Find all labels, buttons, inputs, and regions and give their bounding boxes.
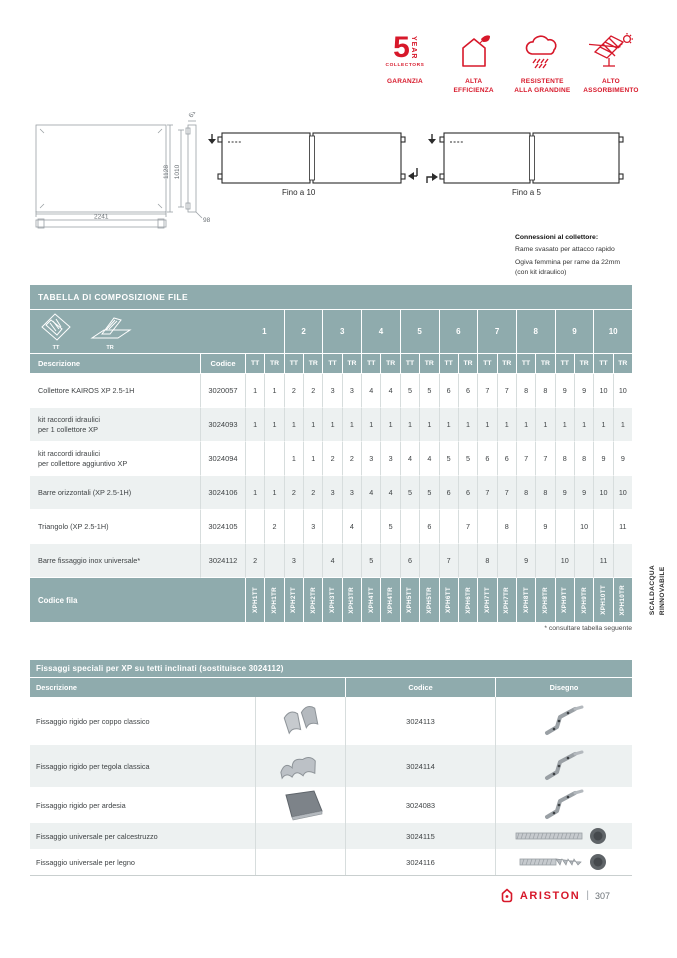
row-value: 1 bbox=[477, 408, 496, 442]
row-value: 2 bbox=[245, 544, 264, 578]
dim-top: 61 bbox=[188, 112, 198, 119]
file-code-text: XPH8TR bbox=[542, 587, 549, 614]
row-code: 3020057 bbox=[200, 374, 245, 408]
row-value: 1 bbox=[613, 408, 632, 442]
row-value bbox=[419, 544, 438, 578]
row-value: 4 bbox=[361, 476, 380, 510]
badge-absorption-label: ALTO ASSORBIMENTO bbox=[583, 78, 638, 96]
file-code-text: XPH6TT bbox=[445, 587, 452, 613]
file-code-text: XPH1TR bbox=[271, 587, 278, 614]
row-value bbox=[516, 510, 535, 544]
row-value: 6 bbox=[439, 374, 458, 408]
threaded-rod-drawing bbox=[495, 823, 632, 849]
fixing-description: Fissaggio rigido per coppo classico bbox=[30, 697, 255, 745]
codice-fila-label: Codice fila bbox=[30, 578, 245, 622]
connection-note-line: Rame svasato per attacco rapido bbox=[515, 245, 665, 255]
row-value: 3 bbox=[342, 476, 361, 510]
row-code: 3024105 bbox=[200, 510, 245, 544]
col-header-codice: Codice bbox=[200, 354, 245, 374]
row-value: 2 bbox=[284, 476, 303, 510]
group-col-5: 5 bbox=[400, 310, 439, 354]
row-value: 6 bbox=[458, 374, 477, 408]
row-value: 4 bbox=[342, 510, 361, 544]
file-code-xph5tt: XPH5TT bbox=[400, 578, 419, 622]
col-header-descrizione: Descrizione bbox=[30, 678, 345, 697]
file-code-text: XPH5TT bbox=[406, 587, 413, 613]
row-code: 3024094 bbox=[200, 442, 245, 476]
series-tr-label: Fino a 5 bbox=[512, 188, 541, 197]
page-footer: ARISTON | 307 bbox=[500, 888, 610, 903]
group-col-1: 1 bbox=[245, 310, 284, 354]
series-tt-diagram bbox=[208, 133, 417, 183]
file-code-text: XPH2TR bbox=[310, 587, 317, 614]
row-value bbox=[535, 544, 554, 578]
row-value bbox=[264, 442, 283, 476]
slate-tile-image bbox=[255, 787, 345, 823]
subcol-tr-2: TR bbox=[303, 354, 322, 374]
row-value: 7 bbox=[458, 510, 477, 544]
file-code-text: XPH9TT bbox=[561, 587, 568, 613]
warranty-collectors-label: COLLECTORS bbox=[386, 63, 425, 68]
page-number: 307 bbox=[595, 891, 610, 901]
row-value: 3 bbox=[284, 544, 303, 578]
subcol-tr-10: TR bbox=[613, 354, 632, 374]
row-description: kit raccordi idraulici per 1 collettore … bbox=[30, 408, 200, 442]
row-value bbox=[303, 544, 322, 578]
row-value: 8 bbox=[516, 374, 535, 408]
badge-hail: RESISTENTE ALLA GRANDINE bbox=[509, 30, 575, 96]
row-value bbox=[380, 544, 399, 578]
warranty-number: 5 bbox=[393, 34, 410, 61]
row-value: 9 bbox=[574, 374, 593, 408]
group-col-2: 2 bbox=[284, 310, 323, 354]
row-value bbox=[574, 544, 593, 578]
group-col-7: 7 bbox=[477, 310, 516, 354]
file-code-text: XPH2TT bbox=[290, 587, 297, 613]
row-value: 1 bbox=[361, 408, 380, 442]
mounting-type-icons: TT TR bbox=[30, 310, 245, 354]
coppo-tile-image bbox=[255, 697, 345, 745]
row-value: 1 bbox=[419, 408, 438, 442]
row-value: 5 bbox=[439, 442, 458, 476]
row-value bbox=[458, 544, 477, 578]
roof-bracket-drawing bbox=[495, 787, 632, 823]
row-value: 1 bbox=[497, 408, 516, 442]
connection-note-line: (con kit idraulico) bbox=[515, 268, 665, 278]
file-code-text: XPH5TR bbox=[426, 587, 433, 614]
tilted-roof-icon bbox=[38, 312, 74, 344]
file-code-xph2tt: XPH2TT bbox=[284, 578, 303, 622]
file-code-xph2tr: XPH2TR bbox=[303, 578, 322, 622]
file-code-xph5tr: XPH5TR bbox=[419, 578, 438, 622]
subcol-tr-5: TR bbox=[419, 354, 438, 374]
group-col-10: 10 bbox=[593, 310, 632, 354]
row-value: 1 bbox=[245, 408, 264, 442]
row-value: 1 bbox=[284, 408, 303, 442]
row-value: 8 bbox=[497, 510, 516, 544]
row-value: 10 bbox=[593, 476, 612, 510]
row-value: 1 bbox=[322, 408, 341, 442]
cloud-hail-icon bbox=[522, 30, 562, 72]
dim-depth: 98 bbox=[203, 217, 211, 224]
tegola-tile-image bbox=[255, 745, 345, 787]
file-code-xph6tr: XPH6TR bbox=[458, 578, 477, 622]
subcol-tr-7: TR bbox=[497, 354, 516, 374]
composition-table-title: TABELLA DI COMPOSIZIONE FILE bbox=[30, 285, 632, 310]
row-value: 9 bbox=[535, 510, 554, 544]
row-value: 10 bbox=[613, 476, 632, 510]
row-value: 1 bbox=[555, 408, 574, 442]
row-description: kit raccordi idraulici per collettore ag… bbox=[30, 442, 200, 476]
row-value: 5 bbox=[419, 374, 438, 408]
subcol-tr-4: TR bbox=[380, 354, 399, 374]
subcol-tr-1: TR bbox=[264, 354, 283, 374]
row-value: 4 bbox=[400, 442, 419, 476]
row-value: 1 bbox=[284, 442, 303, 476]
file-code-xph7tt: XPH7TT bbox=[477, 578, 496, 622]
group-col-6: 6 bbox=[439, 310, 478, 354]
subcol-tt-6: TT bbox=[439, 354, 458, 374]
side-tab-line2: RINNOVABILE bbox=[658, 565, 668, 615]
file-code-text: XPH8TT bbox=[523, 587, 530, 613]
empty-cell bbox=[255, 823, 345, 849]
badge-warranty: 5 YEAR COLLECTORS GARANZIA bbox=[372, 30, 438, 96]
footer-separator: | bbox=[586, 890, 589, 901]
row-value: 3 bbox=[303, 510, 322, 544]
fixing-description: Fissaggio rigido per tegola classica bbox=[30, 745, 255, 787]
fixing-code: 3024116 bbox=[345, 849, 495, 875]
row-value: 6 bbox=[400, 544, 419, 578]
row-code: 3024106 bbox=[200, 476, 245, 510]
row-value: 1 bbox=[593, 408, 612, 442]
roof-bracket-drawing bbox=[495, 745, 632, 787]
group-col-8: 8 bbox=[516, 310, 555, 354]
row-value: 8 bbox=[535, 476, 554, 510]
row-value: 8 bbox=[516, 476, 535, 510]
warranty-year-label: YEAR bbox=[410, 36, 417, 59]
row-value: 3 bbox=[342, 374, 361, 408]
row-value: 6 bbox=[458, 476, 477, 510]
row-value: 8 bbox=[477, 544, 496, 578]
row-value: 1 bbox=[303, 442, 322, 476]
row-value: 6 bbox=[419, 510, 438, 544]
file-code-xph4tt: XPH4TT bbox=[361, 578, 380, 622]
row-value: 5 bbox=[458, 442, 477, 476]
row-value: 6 bbox=[477, 442, 496, 476]
tt-mounting-label: TT bbox=[53, 345, 60, 351]
series-tr-diagram bbox=[427, 133, 623, 183]
row-code: 3024093 bbox=[200, 408, 245, 442]
row-value: 10 bbox=[574, 510, 593, 544]
fixing-code: 3024083 bbox=[345, 787, 495, 823]
section-side-tab: SCALDACQUA RINNOVABILE bbox=[616, 548, 677, 632]
subcol-tt-9: TT bbox=[555, 354, 574, 374]
group-col-9: 9 bbox=[555, 310, 594, 354]
row-value bbox=[284, 510, 303, 544]
special-fixings-header: Descrizione Codice Disegno bbox=[30, 678, 632, 697]
row-value: 11 bbox=[593, 544, 612, 578]
row-value: 7 bbox=[497, 476, 516, 510]
row-value bbox=[555, 510, 574, 544]
row-value: 7 bbox=[439, 544, 458, 578]
row-value bbox=[477, 510, 496, 544]
row-value: 8 bbox=[535, 374, 554, 408]
dim-height-outer: 1128 bbox=[163, 165, 170, 179]
row-value bbox=[400, 510, 419, 544]
row-value: 1 bbox=[380, 408, 399, 442]
row-value: 9 bbox=[555, 476, 574, 510]
row-value: 1 bbox=[303, 408, 322, 442]
row-value: 1 bbox=[264, 408, 283, 442]
row-description: Barre orizzontali (XP 2.5-1H) bbox=[30, 476, 200, 510]
row-value: 7 bbox=[516, 442, 535, 476]
dim-height-inner: 1010 bbox=[174, 164, 181, 179]
subcol-tt-10: TT bbox=[593, 354, 612, 374]
composition-table: TABELLA DI COMPOSIZIONE FILE TT bbox=[30, 285, 632, 622]
row-value bbox=[264, 544, 283, 578]
special-fixings-title: Fissaggi speciali per XP su tetti inclin… bbox=[30, 660, 632, 678]
row-value bbox=[245, 442, 264, 476]
tr-mounting-label: TR bbox=[106, 345, 113, 351]
row-value: 1 bbox=[264, 374, 283, 408]
subcol-tt-8: TT bbox=[516, 354, 535, 374]
col-header-disegno: Disegno bbox=[495, 678, 632, 697]
row-description: Barre fissaggio inox universale* bbox=[30, 544, 200, 578]
row-value bbox=[245, 510, 264, 544]
brand-name: ARISTON bbox=[520, 890, 581, 902]
subcol-tt-2: TT bbox=[284, 354, 303, 374]
row-value: 6 bbox=[439, 476, 458, 510]
special-fixings-table: Fissaggi speciali per XP su tetti inclin… bbox=[30, 660, 632, 876]
row-value: 7 bbox=[477, 374, 496, 408]
ariston-logo-icon bbox=[500, 888, 514, 903]
badge-efficiency: ALTA EFFICIENZA bbox=[441, 30, 507, 96]
row-value: 1 bbox=[516, 408, 535, 442]
special-fixings-grid: Fissaggio rigido per coppo classico30241… bbox=[30, 697, 632, 876]
file-code-text: XPH6TR bbox=[465, 587, 472, 614]
file-code-xph1tt: XPH1TT bbox=[245, 578, 264, 622]
subcol-tt-1: TT bbox=[245, 354, 264, 374]
file-code-text: XPH9TR bbox=[581, 587, 588, 614]
fixing-description: Fissaggio universale per calcestruzzo bbox=[30, 823, 255, 849]
group-col-3: 3 bbox=[322, 310, 361, 354]
file-code-xph10tt: XPH10TT bbox=[593, 578, 612, 622]
subcol-tt-7: TT bbox=[477, 354, 496, 374]
file-code-xph4tr: XPH4TR bbox=[380, 578, 399, 622]
row-value: 1 bbox=[458, 408, 477, 442]
row-value bbox=[593, 510, 612, 544]
row-value: 4 bbox=[419, 442, 438, 476]
subcol-tt-3: TT bbox=[322, 354, 341, 374]
feature-badges: 5 YEAR COLLECTORS GARANZIA ALTA EFFICIEN… bbox=[372, 30, 644, 96]
row-value: 7 bbox=[477, 476, 496, 510]
row-value: 5 bbox=[419, 476, 438, 510]
file-code-xph8tt: XPH8TT bbox=[516, 578, 535, 622]
file-code-text: XPH10TT bbox=[600, 585, 607, 615]
tr-mounting: TR bbox=[88, 312, 132, 351]
connection-notes: Connessioni al collettore: Rame svasato … bbox=[515, 233, 665, 277]
row-value: 1 bbox=[439, 408, 458, 442]
composition-table-grid: TT TR 12345678910DescrizioneCodiceTTTRTT… bbox=[30, 310, 632, 622]
dim-width: 2241 bbox=[94, 214, 109, 221]
row-value: 9 bbox=[516, 544, 535, 578]
file-code-text: XPH4TT bbox=[368, 587, 375, 613]
subcol-tt-4: TT bbox=[361, 354, 380, 374]
row-value: 1 bbox=[245, 476, 264, 510]
fixing-code: 3024114 bbox=[345, 745, 495, 787]
table-footnote: * consultare tabella seguente bbox=[30, 625, 632, 632]
row-value: 4 bbox=[361, 374, 380, 408]
tt-mounting: TT bbox=[38, 312, 74, 351]
row-value: 1 bbox=[574, 408, 593, 442]
wood-screw-drawing bbox=[495, 849, 632, 875]
warranty-5year-icon: 5 YEAR COLLECTORS bbox=[386, 30, 425, 72]
row-value: 2 bbox=[303, 476, 322, 510]
row-value: 1 bbox=[264, 476, 283, 510]
file-code-xph7tr: XPH7TR bbox=[497, 578, 516, 622]
panel-sun-icon bbox=[589, 30, 633, 72]
row-code: 3024112 bbox=[200, 544, 245, 578]
subcol-tr-9: TR bbox=[574, 354, 593, 374]
connection-notes-title: Connessioni al collettore: bbox=[515, 233, 665, 243]
row-value: 5 bbox=[380, 510, 399, 544]
fixing-code: 3024115 bbox=[345, 823, 495, 849]
row-value: 9 bbox=[574, 476, 593, 510]
badge-warranty-label: GARANZIA bbox=[387, 78, 423, 87]
row-value bbox=[497, 544, 516, 578]
house-leaf-icon bbox=[456, 30, 492, 72]
row-value bbox=[342, 544, 361, 578]
catalog-page: 5 YEAR COLLECTORS GARANZIA ALTA EFFICIEN… bbox=[0, 0, 677, 958]
fixing-code: 3024113 bbox=[345, 697, 495, 745]
row-value: 10 bbox=[613, 374, 632, 408]
file-code-xph3tt: XPH3TT bbox=[322, 578, 341, 622]
row-description: Collettore KAIROS XP 2.5-1H bbox=[30, 374, 200, 408]
row-value: 11 bbox=[613, 510, 632, 544]
row-value: 9 bbox=[613, 442, 632, 476]
file-code-text: XPH3TT bbox=[329, 587, 336, 613]
row-value: 4 bbox=[380, 476, 399, 510]
row-value: 3 bbox=[380, 442, 399, 476]
fixing-description: Fissaggio universale per legno bbox=[30, 849, 255, 875]
row-value: 2 bbox=[322, 442, 341, 476]
row-value: 3 bbox=[322, 374, 341, 408]
file-code-xph8tr: XPH8TR bbox=[535, 578, 554, 622]
row-value: 10 bbox=[593, 374, 612, 408]
connection-note-line: Ogiva femmina per rame da 22mm bbox=[515, 258, 665, 268]
row-value: 3 bbox=[361, 442, 380, 476]
row-value: 2 bbox=[303, 374, 322, 408]
file-code-xph3tr: XPH3TR bbox=[342, 578, 361, 622]
subcol-tr-3: TR bbox=[342, 354, 361, 374]
row-value: 1 bbox=[245, 374, 264, 408]
row-value: 2 bbox=[264, 510, 283, 544]
row-value: 3 bbox=[322, 476, 341, 510]
row-value: 1 bbox=[342, 408, 361, 442]
flat-roof-icon bbox=[88, 312, 132, 344]
row-value bbox=[322, 510, 341, 544]
file-code-xph9tt: XPH9TT bbox=[555, 578, 574, 622]
row-value: 2 bbox=[284, 374, 303, 408]
row-value: 7 bbox=[535, 442, 554, 476]
fixing-description: Fissaggio rigido per ardesia bbox=[30, 787, 255, 823]
file-code-text: XPH1TT bbox=[252, 587, 259, 613]
row-value: 5 bbox=[400, 374, 419, 408]
row-value: 1 bbox=[400, 408, 419, 442]
row-value: 9 bbox=[555, 374, 574, 408]
file-code-text: XPH4TR bbox=[387, 587, 394, 614]
file-code-text: XPH7TR bbox=[503, 587, 510, 614]
file-code-xph9tr: XPH9TR bbox=[574, 578, 593, 622]
row-value: 4 bbox=[380, 374, 399, 408]
row-value bbox=[361, 510, 380, 544]
file-code-xph1tr: XPH1TR bbox=[264, 578, 283, 622]
col-header-descrizione: Descrizione bbox=[30, 354, 200, 374]
row-value: 5 bbox=[400, 476, 419, 510]
row-value: 7 bbox=[497, 374, 516, 408]
row-value: 10 bbox=[555, 544, 574, 578]
file-code-text: XPH3TR bbox=[348, 587, 355, 614]
row-value: 9 bbox=[593, 442, 612, 476]
col-header-codice: Codice bbox=[345, 678, 495, 697]
file-code-text: XPH7TT bbox=[484, 587, 491, 613]
file-code-xph6tt: XPH6TT bbox=[439, 578, 458, 622]
side-tab-line1: SCALDACQUA bbox=[648, 565, 658, 615]
series-tt-label: Fino a 10 bbox=[282, 188, 315, 197]
subcol-tt-5: TT bbox=[400, 354, 419, 374]
row-value: 4 bbox=[322, 544, 341, 578]
empty-cell bbox=[255, 849, 345, 875]
badge-efficiency-label: ALTA EFFICIENZA bbox=[454, 78, 494, 96]
row-value bbox=[439, 510, 458, 544]
row-value: 8 bbox=[574, 442, 593, 476]
row-value: 2 bbox=[342, 442, 361, 476]
subcol-tr-6: TR bbox=[458, 354, 477, 374]
roof-bracket-drawing bbox=[495, 697, 632, 745]
row-value: 8 bbox=[555, 442, 574, 476]
row-value: 1 bbox=[535, 408, 554, 442]
badge-hail-label: RESISTENTE ALLA GRANDINE bbox=[514, 78, 570, 96]
badge-absorption: ALTO ASSORBIMENTO bbox=[578, 30, 644, 96]
row-value: 6 bbox=[497, 442, 516, 476]
row-description: Triangolo (XP 2.5-1H) bbox=[30, 510, 200, 544]
subcol-tr-8: TR bbox=[535, 354, 554, 374]
group-col-4: 4 bbox=[361, 310, 400, 354]
row-value: 5 bbox=[361, 544, 380, 578]
